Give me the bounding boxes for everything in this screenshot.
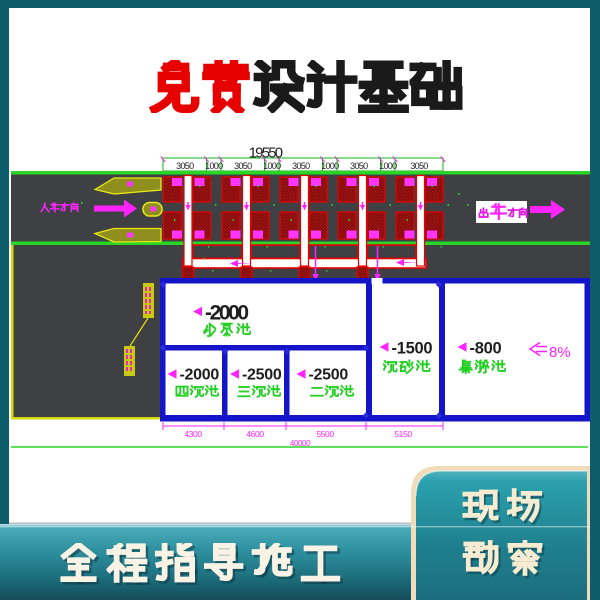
svg-text:-800: -800 [470, 340, 502, 358]
svg-text:1000: 1000 [379, 161, 397, 171]
svg-text:5500: 5500 [316, 429, 334, 439]
svg-text:40000: 40000 [290, 439, 311, 448]
svg-text:-2500: -2500 [309, 367, 349, 384]
svg-text:1000: 1000 [205, 161, 223, 171]
svg-text:1000: 1000 [263, 161, 281, 171]
svg-text:4300: 4300 [184, 429, 202, 439]
svg-text:3050: 3050 [234, 161, 252, 171]
svg-text:19550: 19550 [249, 145, 283, 162]
svg-text:1000: 1000 [321, 161, 339, 171]
svg-text:3050: 3050 [176, 161, 194, 171]
svg-text:3050: 3050 [350, 161, 368, 171]
svg-text:3050: 3050 [410, 161, 428, 171]
svg-text:-2000: -2000 [180, 367, 220, 384]
svg-text:8%: 8% [549, 344, 571, 361]
svg-text:-2500: -2500 [242, 367, 282, 384]
svg-text:-1500: -1500 [392, 340, 433, 358]
svg-text:3050: 3050 [292, 161, 310, 171]
svg-text:5150: 5150 [394, 429, 412, 439]
svg-text:4600: 4600 [246, 429, 264, 439]
svg-text:-2000: -2000 [205, 302, 248, 325]
